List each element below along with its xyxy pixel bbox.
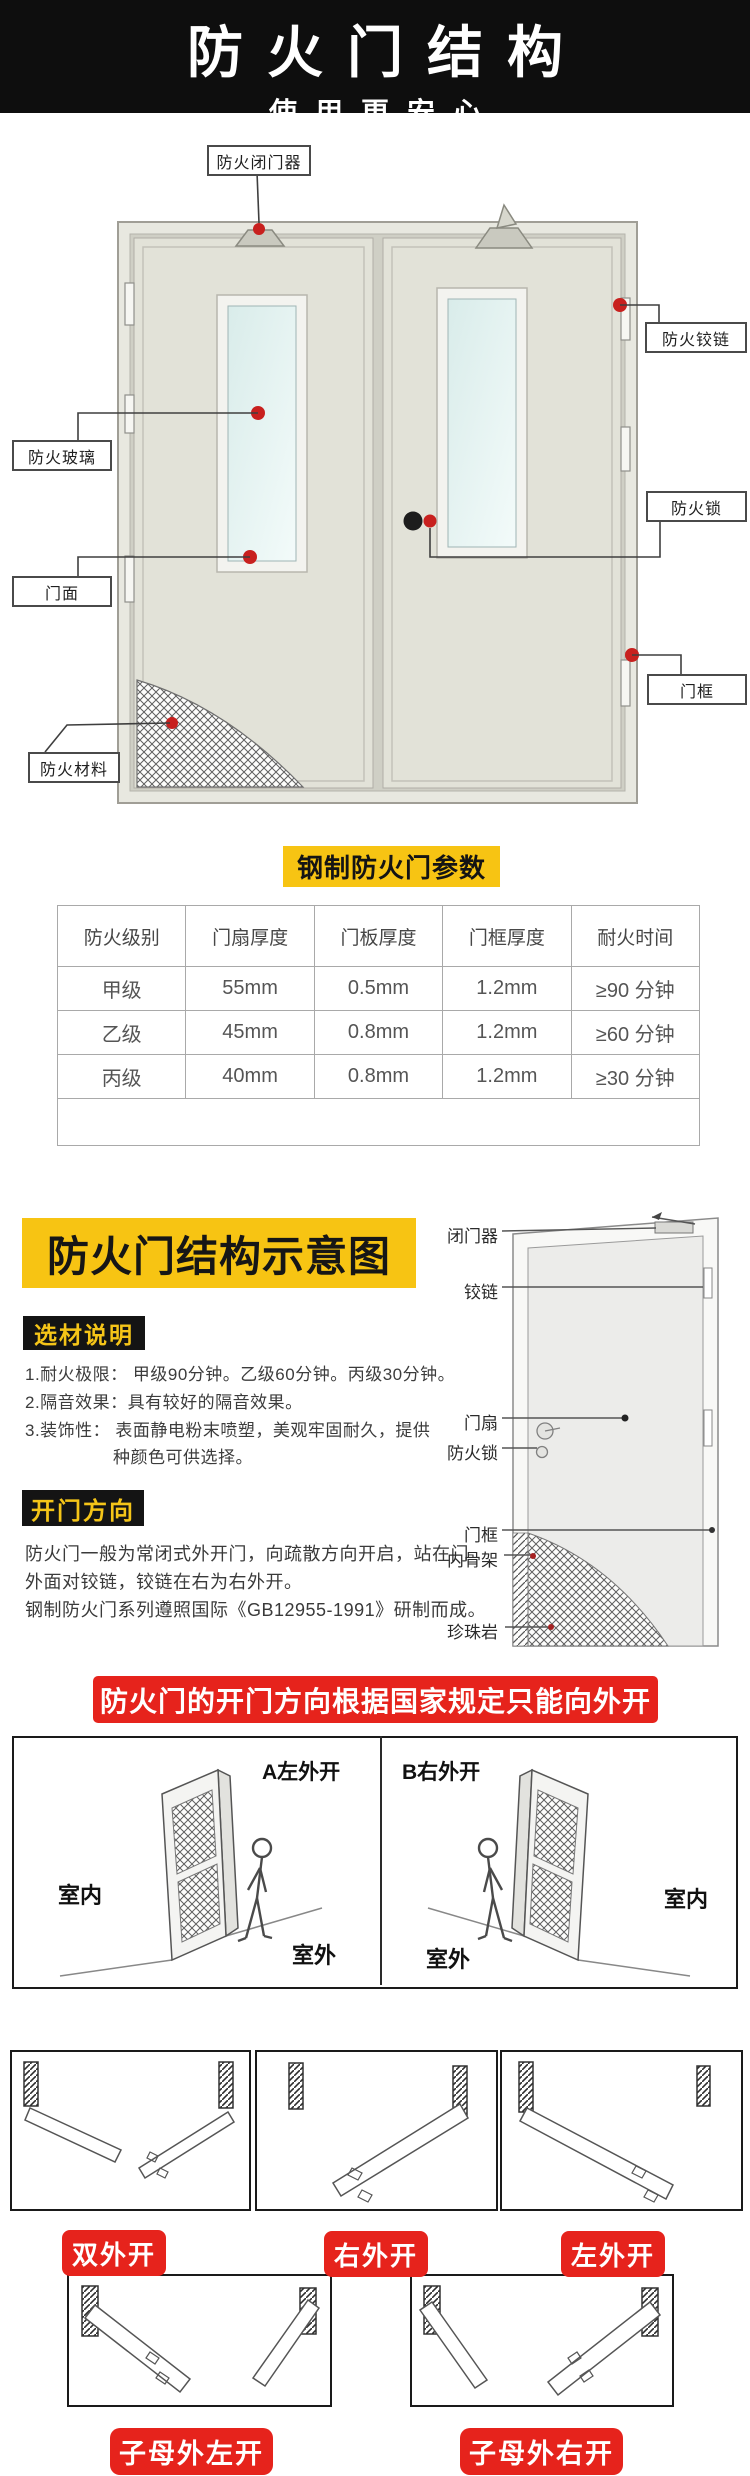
structure-title: 防火门结构示意图	[22, 1218, 416, 1288]
direction-badge: 开门方向	[22, 1490, 144, 1526]
table-header-row: 防火级别 门扇厚度 门板厚度 门框厚度 耐火时间	[58, 906, 700, 967]
params-title: 钢制防火门参数	[283, 846, 500, 887]
panel-a-label: A左外开	[262, 1756, 340, 1786]
schematic-label-frame: 门框	[440, 1521, 498, 1546]
page: 防火门结构 使用更安心	[0, 0, 750, 2476]
material-line: 3.装饰性： 表面静电粉末喷塑，美观牢固耐久，提供	[25, 1416, 430, 1441]
header-banner: 防火门结构 使用更安心	[0, 0, 750, 113]
direction-line: 钢制防火门系列遵照国际《GB12955-1991》研制而成。	[25, 1596, 486, 1622]
page-subtitle: 使用更安心	[0, 91, 750, 131]
callout-dots	[166, 223, 639, 729]
fire-material-hatch	[137, 680, 303, 787]
material-line: 2.隔音效果：具有较好的隔音效果。	[25, 1388, 303, 1413]
badge-mc-left: 子母外左开	[110, 2428, 273, 2475]
table-row: 甲级 55mm 0.5mm 1.2mm ≥90 分钟	[58, 967, 700, 1011]
material-line: 1.耐火极限： 甲级90分钟。乙级60分钟。丙级30分钟。	[25, 1360, 455, 1385]
schematic-label-skeleton: 内骨架	[428, 1546, 498, 1571]
direction-rule-banner: 防火门的开门方向根据国家规定只能向外开	[93, 1676, 658, 1723]
material-line: 种颜色可供选择。	[113, 1443, 253, 1468]
label-fire-hinge: 防火铰链	[645, 322, 747, 353]
direction-diagram-divider	[380, 1736, 382, 1985]
hinges	[125, 283, 630, 706]
panel-double-out	[10, 2050, 251, 2211]
panel-mc-right	[410, 2274, 674, 2407]
material-badge: 选材说明	[23, 1316, 145, 1350]
direction-line: 防火门一般为常闭式外开门，向疏散方向开启，站在门	[25, 1540, 469, 1566]
badge-right-out: 右外开	[324, 2231, 428, 2277]
table-empty-row	[58, 1099, 700, 1146]
panel-mc-left	[67, 2274, 332, 2407]
badge-mc-right: 子母外右开	[460, 2428, 623, 2475]
label-fire-closer: 防火闭门器	[207, 145, 311, 176]
label-fire-lock: 防火锁	[646, 491, 747, 522]
label-fire-glass: 防火玻璃	[12, 440, 112, 471]
door-closer-right	[476, 228, 532, 248]
panel-left-out	[500, 2050, 743, 2211]
schematic-label-leaf: 门扇	[440, 1409, 498, 1434]
panel-b-indoor-label: 室内	[664, 1882, 708, 1914]
badge-left-out: 左外开	[561, 2231, 665, 2277]
page-title: 防火门结构	[0, 0, 750, 89]
badge-double-out: 双外开	[62, 2230, 166, 2276]
panel-right-out	[255, 2050, 498, 2211]
single-door-schematic	[502, 1212, 718, 1646]
callout-lines	[45, 172, 681, 752]
panel-b-outdoor-label: 室外	[426, 1942, 470, 1974]
schematic-label-closer: 闭门器	[440, 1222, 498, 1247]
label-door-frame: 门框	[647, 674, 747, 705]
table-row: 丙级 40mm 0.8mm 1.2mm ≥30 分钟	[58, 1055, 700, 1099]
lock-knob	[404, 512, 423, 531]
direction-diagram-box	[12, 1736, 738, 1989]
main-door-illustration	[45, 172, 681, 803]
door-closer-left	[236, 230, 284, 246]
schematic-label-lock: 防火锁	[426, 1439, 498, 1464]
panel-a-indoor-label: 室内	[58, 1878, 102, 1910]
label-fire-material: 防火材料	[28, 752, 120, 783]
direction-line: 外面对铰链，铰链在右为右外开。	[25, 1568, 303, 1594]
panel-b-label: B右外开	[402, 1756, 480, 1786]
panel-a-outdoor-label: 室外	[292, 1938, 336, 1970]
label-door-face: 门面	[12, 576, 112, 607]
schematic-label-perlite: 珍珠岩	[428, 1618, 498, 1643]
schematic-label-hinge: 铰链	[440, 1278, 498, 1303]
params-table: 防火级别 门扇厚度 门板厚度 门框厚度 耐火时间 甲级 55mm 0.5mm 1…	[57, 905, 700, 1146]
table-row: 乙级 45mm 0.8mm 1.2mm ≥60 分钟	[58, 1011, 700, 1055]
schematic-lines	[502, 1228, 711, 1627]
